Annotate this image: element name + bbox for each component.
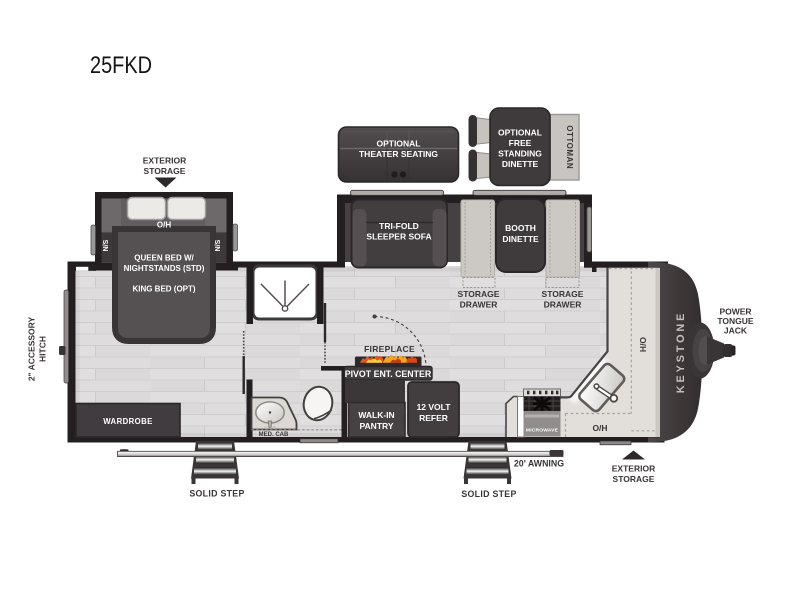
svg-text:EXTERIOR: EXTERIOR [143,156,186,166]
svg-text:12 VOLT: 12 VOLT [417,402,452,412]
svg-text:H/O: H/O [638,337,648,353]
svg-text:JACK: JACK [724,326,748,336]
svg-text:MICROWAVE: MICROWAVE [526,428,559,434]
svg-text:N/S: N/S [103,239,110,251]
svg-text:SLEEPER SOFA: SLEEPER SOFA [366,232,431,242]
svg-text:STORAGE: STORAGE [144,166,186,176]
svg-text:STORAGE: STORAGE [613,474,655,484]
svg-text:STORAGE: STORAGE [542,289,584,299]
svg-text:TRI-FOLD: TRI-FOLD [379,221,419,231]
svg-text:SOLID STEP: SOLID STEP [189,489,244,499]
svg-text:BOOTH: BOOTH [505,223,536,233]
svg-text:KING BED (OPT): KING BED (OPT) [132,285,195,294]
svg-text:OPTIONAL: OPTIONAL [498,128,542,138]
svg-text:FIREPLACE: FIREPLACE [364,344,415,354]
svg-text:WALK-IN: WALK-IN [358,410,394,420]
svg-text:EXTERIOR: EXTERIOR [612,464,655,474]
svg-text:DRAWER: DRAWER [460,300,498,310]
svg-text:WARDROBE: WARDROBE [103,417,153,426]
svg-text:PANTRY: PANTRY [360,421,394,431]
svg-text:2" ACCESSORY: 2" ACCESSORY [27,317,37,382]
svg-text:SOLID STEP: SOLID STEP [461,489,516,499]
svg-text:PIVOT ENT. CENTER: PIVOT ENT. CENTER [345,369,432,379]
svg-text:REFER: REFER [419,413,448,423]
svg-text:POWER: POWER [719,307,751,317]
svg-text:THEATER SEATING: THEATER SEATING [359,149,438,159]
svg-text:STORAGE: STORAGE [458,289,500,299]
svg-text:N/S: N/S [215,239,222,251]
svg-text:DINETTE: DINETTE [502,234,539,244]
svg-text:DRAWER: DRAWER [544,300,582,310]
svg-text:FREE: FREE [509,138,532,148]
svg-text:KEYSTONE: KEYSTONE [675,311,687,393]
svg-text:TONGUE: TONGUE [717,316,754,326]
svg-text:QUEEN BED W/: QUEEN BED W/ [134,254,194,263]
svg-text:NIGHTSTANDS (STD): NIGHTSTANDS (STD) [124,264,205,273]
svg-text:OTTOMAN: OTTOMAN [565,125,574,169]
svg-text:DINETTE: DINETTE [502,159,539,169]
svg-text:STANDING: STANDING [498,149,542,159]
svg-text:HITCH: HITCH [38,336,48,362]
svg-text:O/H: O/H [592,423,607,433]
svg-text:O/H: O/H [157,221,171,230]
svg-text:OPTIONAL: OPTIONAL [377,139,421,149]
svg-text:20' AWNING: 20' AWNING [514,459,564,469]
svg-text:MED. CAB: MED. CAB [259,432,289,438]
svg-text:25FKD: 25FKD [90,52,152,79]
